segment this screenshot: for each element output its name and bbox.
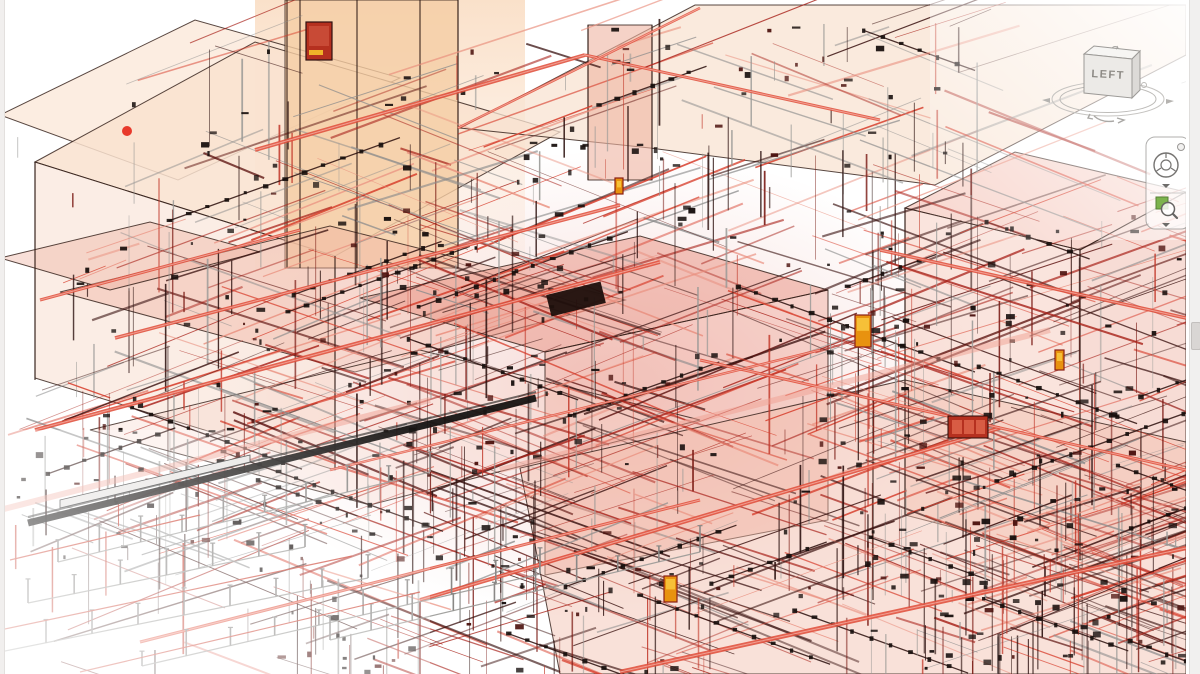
viewcube-face-label[interactable]: LEFT xyxy=(1091,68,1125,82)
viewcube-cube[interactable]: LEFT xyxy=(1084,46,1140,98)
scrollbar-thumb[interactable] xyxy=(1191,322,1200,350)
fade-bottom-left xyxy=(0,430,430,674)
ring-west-arrow-icon[interactable] xyxy=(1042,98,1050,103)
navbar-options-dot-icon[interactable] xyxy=(1178,144,1185,151)
full-navigation-wheel-icon[interactable] xyxy=(1154,153,1178,177)
vertical-scrollbar[interactable] xyxy=(1189,0,1200,674)
viewcube-right-face[interactable] xyxy=(1132,51,1140,98)
revit-3d-view: LEFT xyxy=(0,0,1200,674)
red-dot-marker xyxy=(122,126,132,136)
drawing-area-3d-model[interactable] xyxy=(0,0,1186,674)
drawing-area-left-edge xyxy=(0,0,5,674)
ring-marker-icon xyxy=(1142,83,1147,88)
ring-east-arrow-icon[interactable] xyxy=(1166,99,1174,104)
viewcube[interactable]: LEFT xyxy=(1032,30,1182,150)
